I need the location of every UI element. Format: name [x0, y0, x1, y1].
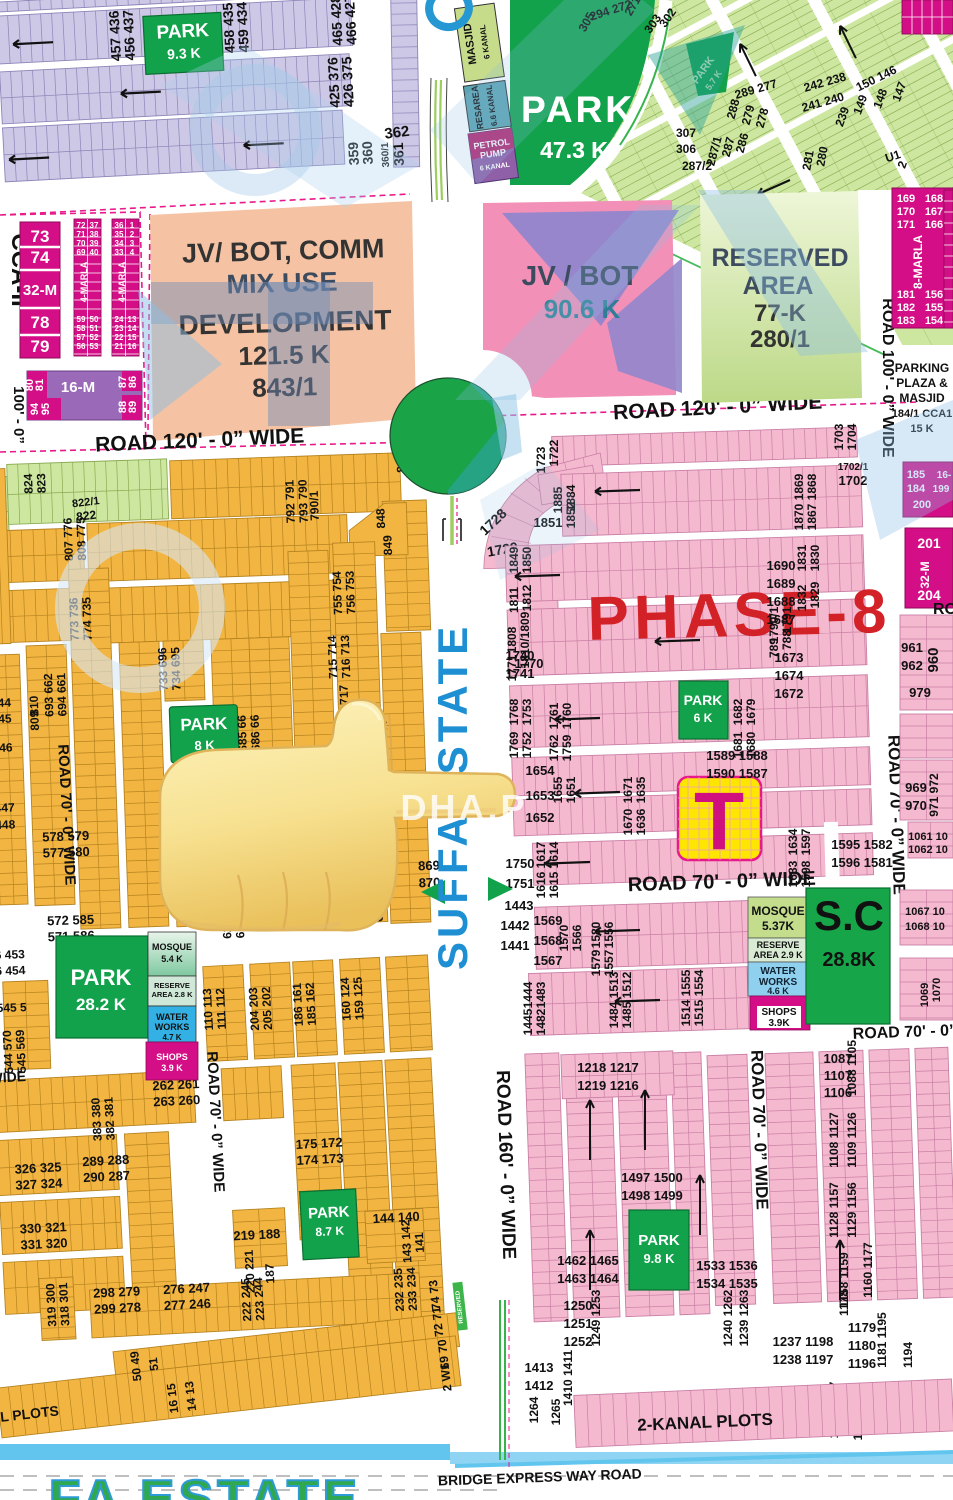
svg-text:AREA 2.8 K: AREA 2.8 K	[152, 990, 194, 999]
svg-text:331 320: 331 320	[20, 1235, 68, 1252]
svg-text:PLAZA &: PLAZA &	[896, 376, 948, 390]
svg-text:21: 21	[115, 342, 124, 351]
svg-text:327 324: 327 324	[15, 1175, 63, 1192]
svg-text:306: 306	[676, 142, 696, 156]
svg-text:382 381: 382 381	[101, 1096, 117, 1140]
svg-text:PARKING: PARKING	[895, 361, 949, 375]
svg-text:1412: 1412	[525, 1378, 554, 1393]
svg-text:1410 1411: 1410 1411	[561, 1350, 575, 1406]
svg-text:447: 447	[0, 800, 15, 815]
svg-text:1463 1464: 1463 1464	[557, 1271, 619, 1286]
svg-text:3: 3	[130, 239, 135, 248]
svg-text:SHOPS: SHOPS	[761, 1007, 796, 1018]
svg-text:330 321: 330 321	[19, 1219, 67, 1236]
svg-text:456 437: 456 437	[120, 9, 139, 61]
svg-text:1128 1157: 1128 1157	[827, 1182, 841, 1238]
svg-text:8-MARLA: 8-MARLA	[911, 235, 925, 289]
svg-text:1750: 1750	[506, 856, 535, 871]
svg-text:277 246: 277 246	[164, 1296, 212, 1313]
svg-text:74: 74	[31, 248, 50, 267]
svg-text:1615: 1615	[547, 871, 561, 898]
svg-text:1868: 1868	[805, 473, 819, 500]
svg-text:1498 1499: 1498 1499	[621, 1188, 682, 1203]
svg-text:PARK: PARK	[180, 714, 228, 735]
svg-text:1249 1253: 1249 1253	[589, 1289, 603, 1346]
svg-text:5.4 K: 5.4 K	[161, 954, 183, 964]
svg-text:183: 183	[897, 315, 915, 327]
svg-text:PARK: PARK	[71, 965, 132, 990]
svg-text:1596 1581: 1596 1581	[831, 855, 892, 870]
svg-text:290 287: 290 287	[83, 1168, 131, 1185]
svg-text:1566: 1566	[570, 924, 584, 951]
svg-text:1690: 1690	[767, 558, 796, 573]
svg-text:JV/ BOT, COMM: JV/ BOT, COMM	[182, 233, 385, 268]
svg-text:56: 56	[77, 342, 86, 351]
svg-text:1: 1	[130, 221, 135, 230]
svg-text:57: 57	[77, 333, 86, 342]
svg-text:37: 37	[90, 221, 99, 230]
svg-text:PHASE-8: PHASE-8	[587, 577, 892, 654]
svg-text:4.6 K: 4.6 K	[767, 986, 789, 996]
svg-text:1589 1588: 1589 1588	[706, 748, 767, 763]
svg-text:1514 1555: 1514 1555	[679, 969, 693, 1026]
svg-text:181: 181	[897, 289, 915, 301]
svg-text:1672: 1672	[775, 686, 804, 701]
svg-text:53: 53	[90, 342, 99, 351]
svg-text:1762: 1762	[547, 734, 561, 761]
svg-text:175 172: 175 172	[295, 1135, 343, 1152]
svg-text:1752: 1752	[520, 731, 534, 758]
svg-text:WATER: WATER	[760, 966, 796, 977]
svg-text:58: 58	[77, 324, 86, 333]
svg-text:961: 961	[901, 640, 923, 655]
svg-text:1070: 1070	[931, 978, 943, 1002]
svg-text:PARK: PARK	[156, 20, 210, 44]
svg-text:1760: 1760	[560, 702, 574, 729]
svg-text:466 427: 466 427	[341, 0, 360, 45]
svg-text:307: 307	[676, 126, 696, 140]
svg-text:1634: 1634	[786, 828, 800, 855]
svg-text:1061 10: 1061 10	[908, 831, 948, 843]
svg-text:4-MARLA: 4-MARLA	[117, 261, 127, 302]
svg-text:1674: 1674	[775, 668, 805, 683]
svg-text:2: 2	[130, 230, 135, 239]
svg-text:185 162: 185 162	[303, 982, 319, 1026]
svg-text:35: 35	[115, 230, 124, 239]
svg-text:1556: 1556	[602, 921, 616, 948]
svg-text:9.3 K: 9.3 K	[167, 44, 201, 62]
svg-text:1597: 1597	[799, 828, 813, 855]
svg-text:756 753: 756 753	[343, 570, 359, 614]
svg-text:168: 168	[925, 193, 943, 205]
svg-text:144 140: 144 140	[372, 1209, 420, 1226]
svg-text:1441: 1441	[501, 938, 530, 953]
svg-text:40: 40	[90, 248, 99, 257]
svg-text:28.2 K: 28.2 K	[76, 995, 127, 1014]
svg-text:PARK: PARK	[521, 89, 635, 130]
svg-text:1570: 1570	[557, 924, 571, 951]
svg-text:446: 446	[0, 740, 13, 755]
svg-text:1442: 1442	[501, 918, 530, 933]
svg-text:1722: 1722	[547, 439, 561, 466]
svg-text:445: 445	[0, 711, 12, 726]
svg-text:1671: 1671	[621, 776, 635, 803]
svg-text:1109 1126: 1109 1126	[845, 1112, 859, 1168]
svg-text:1533 1536: 1533 1536	[696, 1258, 757, 1273]
svg-text:426 375: 426 375	[338, 56, 357, 108]
svg-text:299 278: 299 278	[94, 1299, 142, 1316]
svg-text:24: 24	[115, 315, 124, 324]
svg-text:MOSQUE: MOSQUE	[751, 904, 804, 918]
svg-text:154: 154	[925, 315, 944, 327]
svg-text:444: 444	[0, 695, 12, 710]
svg-text:6 K: 6 K	[694, 711, 713, 725]
svg-text:28.8K: 28.8K	[822, 949, 876, 971]
svg-text:1240 1262: 1240 1262	[721, 1289, 735, 1346]
svg-text:572 585: 572 585	[47, 912, 94, 929]
svg-text:23: 23	[115, 324, 124, 333]
svg-text:38: 38	[90, 230, 99, 239]
svg-text:1413: 1413	[525, 1360, 554, 1375]
svg-text:52: 52	[90, 333, 99, 342]
svg-text:22: 22	[115, 333, 124, 342]
svg-text:716 713: 716 713	[338, 635, 354, 679]
svg-text:166: 166	[925, 219, 943, 231]
svg-text:WIDE: WIDE	[0, 1068, 26, 1086]
svg-text:1682: 1682	[731, 698, 745, 725]
svg-text:32-M: 32-M	[918, 561, 932, 588]
svg-text:S.C: S.C	[814, 892, 884, 939]
svg-text:141: 141	[412, 1232, 427, 1253]
svg-text:823: 823	[34, 473, 49, 494]
svg-text:111 112: 111 112	[213, 987, 229, 1029]
svg-text:1812: 1812	[520, 584, 534, 611]
svg-text:276 247: 276 247	[163, 1280, 211, 1297]
svg-text:34: 34	[115, 239, 124, 248]
svg-text:4-MARLA: 4-MARLA	[79, 261, 89, 302]
svg-text:50: 50	[90, 315, 99, 324]
svg-text:1741: 1741	[506, 666, 535, 681]
svg-text:6 454: 6 454	[0, 963, 26, 978]
svg-text:1759: 1759	[560, 734, 574, 761]
svg-text:1702: 1702	[839, 473, 868, 488]
svg-text:1829: 1829	[808, 581, 822, 608]
svg-text:1768: 1768	[507, 698, 521, 725]
svg-text:1703: 1703	[832, 423, 846, 450]
svg-text:1679: 1679	[744, 698, 758, 725]
svg-text:1534 1535: 1534 1535	[696, 1276, 757, 1291]
svg-text:1830: 1830	[808, 544, 822, 571]
svg-text:1616: 1616	[534, 871, 548, 898]
svg-text:1485 1512: 1485 1512	[620, 971, 634, 1028]
svg-text:100' - 0”: 100' - 0”	[10, 386, 27, 444]
svg-text:78: 78	[31, 313, 50, 332]
svg-text:39: 39	[90, 239, 99, 248]
svg-text:MASJID: MASJID	[899, 391, 945, 405]
svg-text:298 279: 298 279	[93, 1283, 141, 1300]
svg-text:155: 155	[925, 302, 943, 314]
svg-text:1462 1465: 1462 1465	[557, 1253, 618, 1268]
svg-text:3.9K: 3.9K	[768, 1018, 790, 1029]
svg-text:223 244: 223 244	[251, 1277, 267, 1321]
svg-text:PARK: PARK	[638, 1232, 680, 1249]
svg-text:89: 89	[127, 401, 139, 413]
svg-text:1670: 1670	[621, 808, 635, 835]
svg-text:1219 1216: 1219 1216	[577, 1078, 638, 1093]
svg-text:73: 73	[31, 227, 50, 246]
svg-text:979: 979	[909, 685, 931, 700]
svg-text:182: 182	[897, 302, 915, 314]
svg-text:4: 4	[130, 248, 135, 257]
svg-text:36: 36	[115, 221, 124, 230]
svg-text:15: 15	[128, 333, 137, 342]
svg-text:1687: 1687	[767, 612, 796, 627]
svg-text:1160 1177: 1160 1177	[861, 1242, 875, 1298]
svg-text:T: T	[694, 776, 744, 867]
svg-text:WATER: WATER	[156, 1012, 188, 1022]
svg-text:205 202: 205 202	[259, 986, 275, 1030]
svg-text:1238 1197: 1238 1197	[773, 1352, 834, 1367]
svg-text:1237 1198: 1237 1198	[773, 1334, 834, 1349]
svg-text:1196: 1196	[848, 1356, 876, 1371]
svg-text:14: 14	[128, 324, 137, 333]
svg-text:969: 969	[905, 780, 927, 795]
svg-text:1652: 1652	[526, 810, 555, 825]
svg-text:233 234: 233 234	[404, 1267, 420, 1311]
svg-text:1590 1587: 1590 1587	[706, 766, 767, 781]
svg-text:PARK: PARK	[308, 1203, 350, 1222]
svg-text:RESERVE: RESERVE	[757, 940, 800, 950]
svg-text:1567: 1567	[534, 953, 563, 968]
svg-text:71: 71	[77, 230, 86, 239]
svg-text:32-M: 32-M	[23, 282, 57, 299]
svg-text:1595 1582: 1595 1582	[831, 837, 892, 852]
svg-text:70: 70	[77, 239, 86, 248]
svg-text:1654: 1654	[526, 763, 556, 778]
svg-text:788: 788	[780, 630, 794, 650]
svg-text:1129 1156: 1129 1156	[845, 1182, 859, 1238]
svg-text:1194: 1194	[901, 1342, 915, 1368]
svg-text:RESERVE: RESERVE	[154, 981, 190, 990]
svg-text:1444: 1444	[521, 981, 535, 1008]
svg-text:1179: 1179	[848, 1320, 876, 1335]
svg-text:1673: 1673	[775, 650, 804, 665]
svg-text:51: 51	[90, 324, 99, 333]
svg-text:1483: 1483	[534, 981, 548, 1008]
svg-text:1867: 1867	[805, 503, 819, 530]
svg-text:1218 1217: 1218 1217	[577, 1060, 638, 1075]
svg-text:694 661: 694 661	[54, 672, 70, 716]
svg-text:962: 962	[901, 658, 923, 673]
svg-text:459 434: 459 434	[233, 1, 252, 53]
svg-text:960: 960	[925, 647, 942, 672]
svg-text:169: 169	[897, 193, 915, 205]
svg-text:971 972: 971 972	[927, 773, 941, 817]
svg-text:86: 86	[127, 376, 139, 388]
svg-text:8.7 K: 8.7 K	[315, 1224, 345, 1239]
svg-text:3.9 K: 3.9 K	[161, 1063, 183, 1073]
svg-text:1181 1195: 1181 1195	[875, 1312, 889, 1368]
svg-text:1579: 1579	[589, 949, 603, 976]
svg-text:1180: 1180	[848, 1338, 876, 1353]
svg-text:1753: 1753	[520, 698, 534, 725]
svg-text:1651: 1651	[564, 776, 578, 803]
svg-text:1482: 1482	[534, 1008, 548, 1035]
svg-text:69: 69	[77, 248, 86, 257]
svg-text:1108 1127: 1108 1127	[827, 1112, 841, 1168]
svg-text:MOSQUE: MOSQUE	[152, 942, 192, 952]
svg-text:1515 1554: 1515 1554	[692, 969, 706, 1026]
svg-text:16-M: 16-M	[61, 379, 95, 396]
svg-text:1443: 1443	[505, 898, 534, 913]
svg-text:9.8 K: 9.8 K	[643, 1251, 675, 1266]
svg-text:1069: 1069	[919, 983, 931, 1007]
svg-text:6 453: 6 453	[0, 947, 25, 962]
svg-text:1689: 1689	[767, 576, 796, 591]
svg-text:790/1: 790/1	[307, 490, 322, 521]
svg-text:1636: 1636	[634, 808, 648, 835]
svg-text:1088 1105: 1088 1105	[845, 1040, 859, 1096]
svg-text:WORKS: WORKS	[155, 1022, 190, 1032]
svg-text:1239 1263: 1239 1263	[737, 1289, 751, 1346]
svg-text:1831: 1831	[795, 544, 809, 571]
svg-text:1869: 1869	[792, 473, 806, 500]
svg-text:170: 170	[897, 206, 915, 218]
svg-text:686 66: 686 66	[248, 714, 263, 751]
svg-text:1811: 1811	[507, 587, 521, 613]
svg-text:FA ESTATE: FA ESTATE	[49, 1470, 361, 1500]
svg-text:201: 201	[917, 535, 941, 551]
svg-text:47.3 K: 47.3 K	[540, 137, 608, 163]
svg-text:1740: 1740	[506, 648, 535, 663]
svg-text:4.7 K: 4.7 K	[162, 1033, 181, 1042]
svg-text:51: 51	[146, 1357, 161, 1372]
svg-text:SHOPS: SHOPS	[156, 1052, 188, 1062]
svg-text:849: 849	[380, 535, 395, 556]
svg-text:848: 848	[373, 508, 388, 529]
svg-text:219 188: 219 188	[233, 1226, 281, 1243]
svg-text:81: 81	[34, 379, 46, 391]
svg-text:16: 16	[128, 342, 137, 351]
svg-text:33: 33	[115, 248, 124, 257]
svg-text:1769: 1769	[507, 731, 521, 758]
svg-text:79: 79	[31, 337, 50, 356]
svg-text:1655: 1655	[551, 776, 565, 803]
svg-text:13: 13	[128, 315, 137, 324]
svg-text:1067 10: 1067 10	[905, 906, 945, 918]
svg-text:159 125: 159 125	[350, 976, 366, 1020]
svg-text:263 260: 263 260	[153, 1092, 201, 1109]
svg-text:1062 10: 1062 10	[908, 844, 948, 856]
svg-text:362: 362	[384, 123, 411, 143]
svg-text:PARK: PARK	[684, 692, 723, 708]
svg-text:545 569: 545 569	[13, 1029, 29, 1073]
svg-text:174 173: 174 173	[296, 1151, 344, 1168]
svg-text:5.37K: 5.37K	[762, 919, 794, 933]
svg-text:1635: 1635	[634, 776, 648, 803]
svg-text:AREA 2.9 K: AREA 2.9 K	[753, 950, 803, 960]
svg-text:1068 10: 1068 10	[905, 921, 945, 933]
svg-text:1497 1500: 1497 1500	[621, 1170, 682, 1185]
svg-text:289 288: 289 288	[82, 1152, 130, 1169]
svg-text:59: 59	[77, 315, 86, 324]
svg-text:95: 95	[40, 403, 52, 415]
svg-text:326 325: 326 325	[14, 1159, 62, 1176]
svg-text:545 5: 545 5	[0, 1000, 27, 1015]
svg-text:809: 809	[27, 710, 42, 731]
svg-text:318 301: 318 301	[56, 1282, 72, 1326]
svg-text:1870: 1870	[792, 503, 806, 530]
svg-text:1445: 1445	[521, 1008, 535, 1035]
svg-text:448: 448	[0, 817, 16, 832]
svg-text:ROAD 70' - 0”: ROAD 70' - 0”	[852, 1022, 953, 1043]
svg-text:DHA.P: DHA.P	[400, 787, 527, 828]
svg-text:156: 156	[925, 289, 943, 301]
svg-text:1264: 1264	[527, 1396, 541, 1423]
svg-text:1832: 1832	[795, 584, 809, 611]
svg-text:171: 171	[897, 219, 915, 231]
svg-text:1688: 1688	[767, 594, 796, 609]
svg-text:970: 970	[905, 798, 927, 813]
svg-text:167: 167	[925, 206, 943, 218]
svg-text:72: 72	[77, 221, 86, 230]
